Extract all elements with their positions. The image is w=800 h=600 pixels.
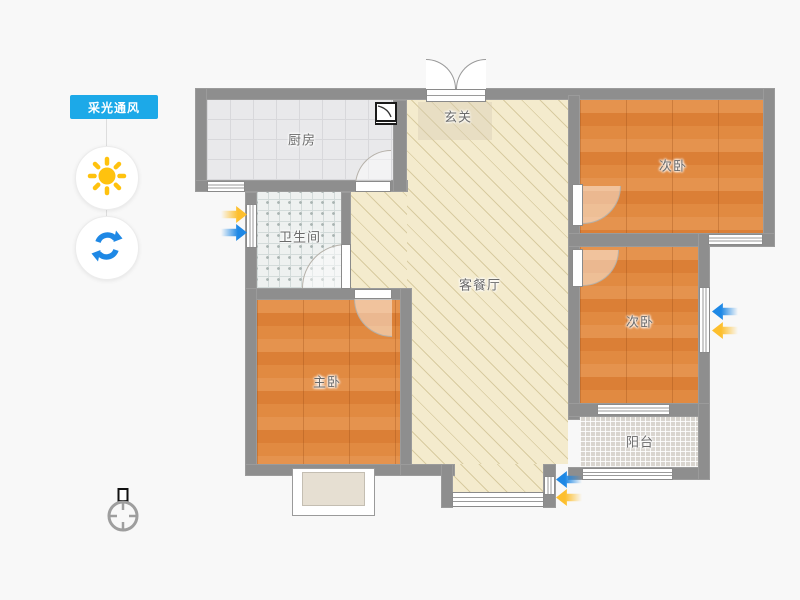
wall-segment: [698, 403, 710, 480]
balcony-window: [582, 468, 673, 480]
bedroom-mid-door: [572, 249, 583, 287]
master-door: [354, 289, 392, 299]
living-floor-bay: [453, 464, 543, 494]
room-label-bedroom-mid: 次卧: [626, 312, 654, 331]
bathroom-door: [341, 244, 351, 289]
entrance-door-leaf-left: [426, 59, 456, 89]
sunlight-button[interactable]: [75, 146, 139, 210]
wall-segment: [763, 88, 775, 247]
lighting-arrow-icon: [712, 322, 738, 339]
lighting-arrow-icon: [221, 206, 247, 223]
water-heater-icon: [375, 102, 397, 125]
bathroom-window: [246, 204, 257, 248]
room-label-entry: 玄关: [444, 107, 472, 126]
ventilation-arrow-icon: [221, 224, 247, 241]
kitchen-door: [355, 181, 391, 192]
wall-segment: [195, 88, 207, 192]
lighting-ventilation-mode-button[interactable]: 采光通风: [70, 95, 158, 119]
room-label-bathroom: 卫生间: [279, 227, 321, 246]
bedroom-top-door: [572, 184, 583, 226]
living-floor-extension: [351, 192, 407, 288]
floorplan-viewer: 采光通风: [0, 0, 800, 600]
entrance-door-sill: [426, 89, 486, 102]
entrance-door-leaf-right: [456, 59, 486, 89]
kitchen-window: [207, 181, 245, 192]
living-side-window: [544, 476, 555, 495]
ventilation-arrow-icon: [712, 303, 738, 320]
connector-line: [106, 119, 107, 146]
master-bay-window-sill: [302, 472, 365, 506]
room-label-master: 主卧: [313, 372, 341, 391]
bedroom-mid-window: [699, 287, 710, 353]
bedroom-balcony-window: [597, 404, 670, 415]
refresh-icon: [89, 228, 125, 269]
lighting-arrow-icon: [556, 489, 582, 506]
compass-icon: [103, 486, 143, 539]
room-label-balcony: 阳台: [626, 432, 654, 451]
living-window: [452, 492, 544, 507]
bedroom-top-window: [708, 234, 763, 245]
ventilation-refresh-button[interactable]: [75, 216, 139, 280]
room-label-living: 客餐厅: [459, 275, 501, 294]
sun-icon: [87, 156, 127, 201]
wall-segment: [245, 288, 257, 476]
room-label-bedroom-top: 次卧: [659, 156, 687, 175]
wall-segment: [400, 288, 412, 476]
room-label-kitchen: 厨房: [288, 130, 316, 149]
